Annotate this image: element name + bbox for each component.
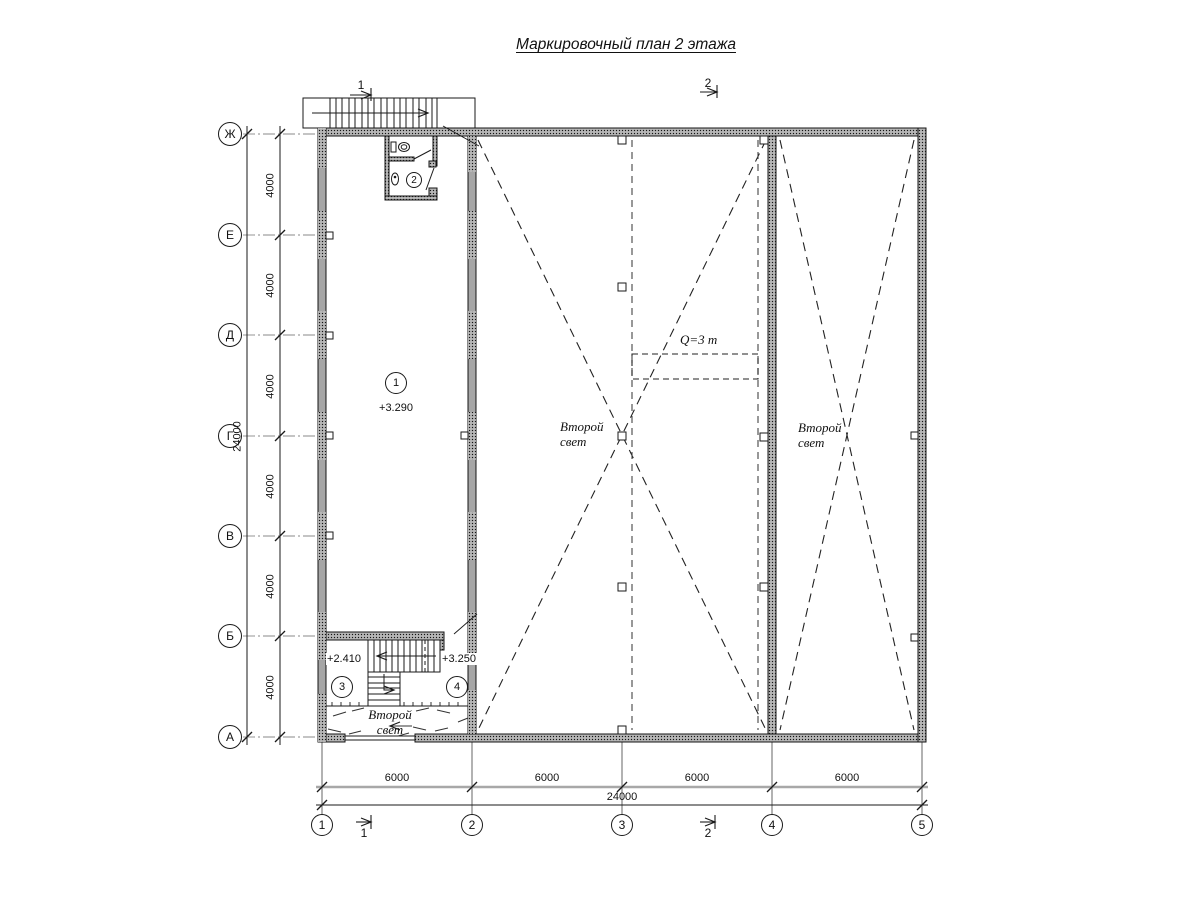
dim-left-segment-4: 4000 bbox=[265, 467, 278, 507]
dim-left-segment-2: 4000 bbox=[265, 266, 278, 306]
room-bubble-4: 4 bbox=[446, 676, 468, 698]
col-axis-bubble-4: 4 bbox=[761, 814, 783, 836]
row-axis-label: Ж bbox=[224, 127, 235, 141]
row-axis-label: Е bbox=[226, 228, 234, 242]
wc-door-leaf bbox=[414, 150, 431, 159]
dimension-lines bbox=[247, 126, 928, 805]
col-axis-bubble-1: 1 bbox=[311, 814, 333, 836]
row-axis-bubble-e: Е bbox=[218, 223, 242, 247]
col-axis-bubble-2: 2 bbox=[461, 814, 483, 836]
section-mark-2-bottom-label: 2 bbox=[701, 826, 715, 840]
dim-bottom-total: 24000 bbox=[594, 791, 650, 804]
col-axis-label: 1 bbox=[319, 818, 326, 832]
dim-left-segment-1: 4000 bbox=[265, 166, 278, 206]
room-number: 1 bbox=[393, 377, 399, 389]
col-axis-label: 2 bbox=[469, 818, 476, 832]
elevation-mark-room1: +3.290 bbox=[377, 402, 415, 414]
col-axis-label: 3 bbox=[619, 818, 626, 832]
exterior-staircase bbox=[303, 98, 475, 128]
wc-room bbox=[385, 136, 437, 200]
row-axis-bubble-a: А bbox=[218, 725, 242, 749]
second-light-label-right: Второй свет bbox=[798, 420, 846, 450]
room-number: 3 bbox=[339, 681, 345, 693]
col-axis-label: 5 bbox=[919, 818, 926, 832]
wc-entry-door-leaf bbox=[426, 168, 434, 190]
crane-rails bbox=[632, 140, 758, 730]
elevation-mark-room3: +2.410 bbox=[326, 653, 362, 665]
row-axis-label: Б bbox=[226, 629, 234, 643]
col-axis-label: 4 bbox=[769, 818, 776, 832]
section-mark-2-top-label: 2 bbox=[701, 76, 715, 90]
drawing-title: Маркировочный план 2 этажа bbox=[450, 36, 802, 54]
dim-left-total: 24000 bbox=[232, 409, 245, 465]
row-axis-bubble-b: Б bbox=[218, 624, 242, 648]
dim-bottom-segment-1: 6000 bbox=[377, 772, 417, 785]
row-axis-label: А bbox=[226, 730, 234, 744]
section-mark-1-bottom-label: 1 bbox=[357, 826, 371, 840]
dim-bottom-segment-3: 6000 bbox=[677, 772, 717, 785]
dim-left-segment-5: 4000 bbox=[265, 567, 278, 607]
dim-bottom-segment-2: 6000 bbox=[527, 772, 567, 785]
section-mark-1-top-label: 1 bbox=[354, 78, 368, 92]
room-bubble-1: 1 bbox=[385, 372, 407, 394]
crane-capacity-label: Q=3 т bbox=[680, 332, 732, 347]
room-bubble-3: 3 bbox=[331, 676, 353, 698]
row-axis-label: В bbox=[226, 529, 234, 543]
row-axis-bubble-zh: Ж bbox=[218, 122, 242, 146]
room-bubble-2: 2 bbox=[406, 172, 422, 188]
room-number: 2 bbox=[411, 175, 417, 186]
col-axis-bubble-3: 3 bbox=[611, 814, 633, 836]
plan-linework bbox=[0, 0, 1200, 900]
col-axis-bubble-5: 5 bbox=[911, 814, 933, 836]
drawing-sheet: Маркировочный план 2 этажа 1 2 1 2 Ж Е Д… bbox=[0, 0, 1200, 900]
second-light-label-bottom: Второй свет bbox=[358, 707, 422, 737]
row-axis-label: Д bbox=[226, 328, 234, 342]
elevation-mark-room4: +3.250 bbox=[441, 653, 477, 665]
room-number: 4 bbox=[454, 681, 460, 693]
row-axis-bubble-v: В bbox=[218, 524, 242, 548]
row-axis-bubble-d: Д bbox=[218, 323, 242, 347]
dim-bottom-segment-4: 6000 bbox=[827, 772, 867, 785]
second-light-label-middle: Второй свет bbox=[560, 419, 608, 449]
dim-left-segment-3: 4000 bbox=[265, 367, 278, 407]
dim-left-segment-6: 4000 bbox=[265, 668, 278, 708]
dimension-ticks bbox=[242, 129, 927, 810]
